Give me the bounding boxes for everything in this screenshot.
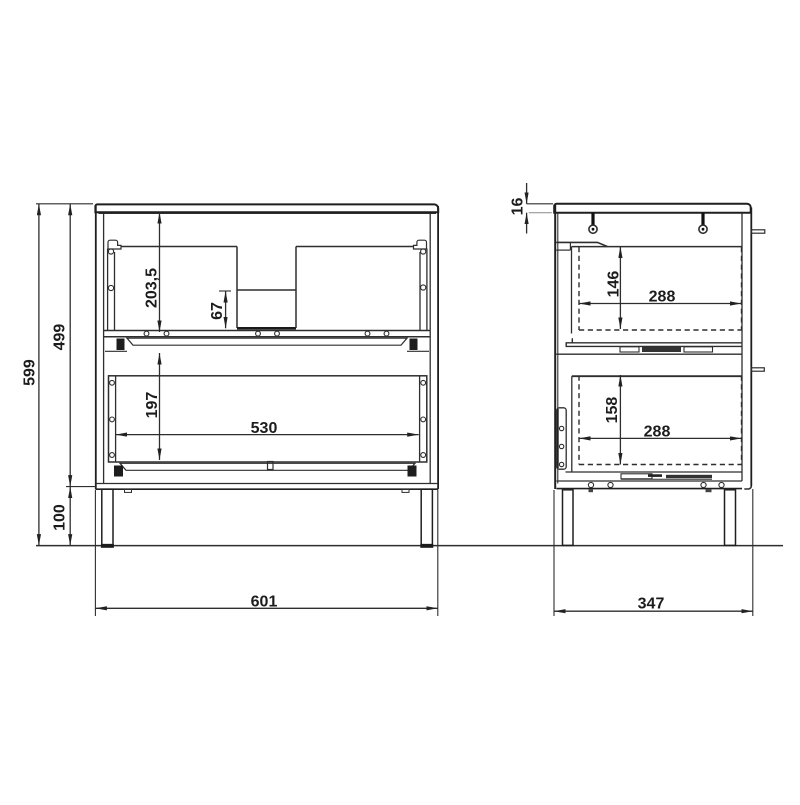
svg-text:499: 499 (52, 324, 69, 351)
svg-text:347: 347 (638, 595, 665, 612)
svg-text:288: 288 (649, 289, 676, 306)
svg-text:601: 601 (251, 594, 278, 611)
svg-text:530: 530 (251, 420, 278, 437)
svg-text:100: 100 (52, 504, 69, 531)
svg-text:16: 16 (510, 198, 527, 216)
svg-text:203,5: 203,5 (144, 268, 161, 308)
svg-text:197: 197 (144, 392, 161, 419)
svg-text:158: 158 (604, 397, 621, 424)
svg-text:288: 288 (644, 424, 671, 441)
svg-text:146: 146 (606, 271, 623, 298)
svg-text:599: 599 (22, 359, 39, 386)
svg-text:67: 67 (209, 302, 226, 320)
